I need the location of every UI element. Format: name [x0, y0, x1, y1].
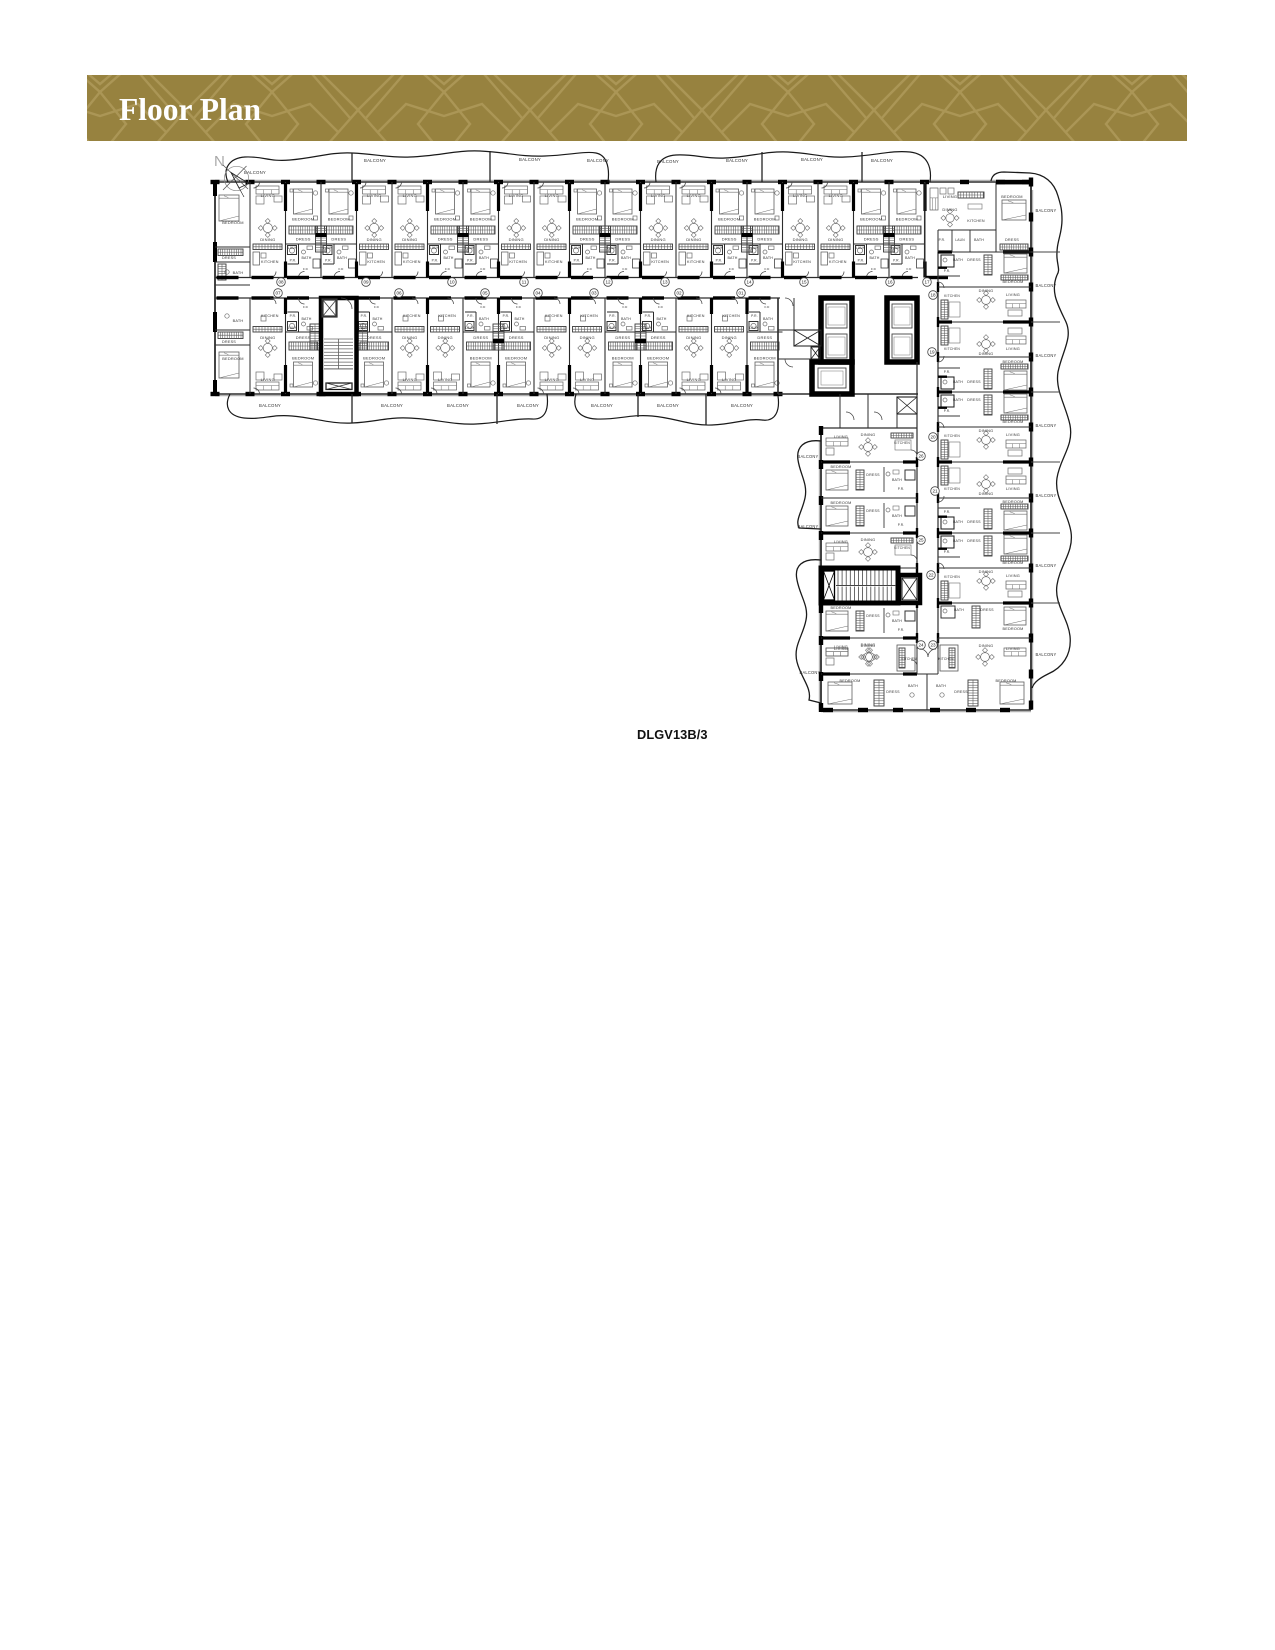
svg-text:LIVING: LIVING	[687, 377, 701, 382]
svg-text:BATH: BATH	[443, 256, 453, 260]
svg-text:F.D: F.D	[445, 267, 451, 271]
svg-text:BEDROOM: BEDROOM	[896, 217, 918, 222]
svg-text:BALCONY: BALCONY	[1036, 493, 1057, 498]
svg-text:F.D: F.D	[303, 267, 309, 271]
svg-text:DRESS: DRESS	[954, 690, 968, 694]
svg-text:20: 20	[930, 435, 936, 440]
svg-text:BEDROOM: BEDROOM	[839, 679, 860, 683]
svg-text:KITCHEN: KITCHEN	[722, 314, 740, 318]
svg-text:KITCHEN: KITCHEN	[944, 575, 960, 579]
svg-text:P.R.: P.R.	[898, 523, 905, 527]
svg-text:LAUN: LAUN	[430, 246, 440, 250]
svg-text:LIVING: LIVING	[1006, 432, 1020, 437]
svg-text:LAUN: LAUN	[891, 246, 901, 250]
svg-text:BATH: BATH	[514, 317, 524, 321]
svg-text:F.D: F.D	[480, 305, 486, 309]
svg-text:DRESS: DRESS	[864, 237, 879, 242]
svg-text:LIVING: LIVING	[509, 193, 523, 198]
svg-text:BATH: BATH	[301, 317, 311, 321]
svg-text:18: 18	[930, 293, 936, 298]
svg-text:P.R.: P.R.	[751, 314, 758, 318]
svg-text:BEDROOM: BEDROOM	[1002, 627, 1023, 631]
svg-text:KITCHEN: KITCHEN	[580, 314, 598, 318]
svg-text:LAUN: LAUN	[607, 246, 617, 250]
svg-text:DRESS: DRESS	[967, 520, 981, 524]
svg-text:P.R.: P.R.	[939, 238, 946, 242]
svg-text:DINING: DINING	[651, 237, 666, 242]
svg-text:DINING: DINING	[942, 207, 957, 212]
svg-text:F.D: F.D	[764, 267, 770, 271]
svg-text:BEDROOM: BEDROOM	[576, 217, 598, 222]
svg-text:P.R.: P.R.	[290, 314, 297, 318]
svg-text:P.R.: P.R.	[751, 259, 758, 263]
svg-text:BEDROOM: BEDROOM	[292, 217, 314, 222]
svg-text:BATH: BATH	[233, 271, 244, 275]
svg-text:BEDROOM: BEDROOM	[995, 679, 1016, 683]
svg-text:DINING: DINING	[438, 335, 453, 340]
svg-text:DRESS: DRESS	[967, 539, 981, 543]
svg-text:BALCONY: BALCONY	[591, 403, 613, 408]
svg-text:F.D: F.D	[622, 267, 628, 271]
svg-text:P.R.: P.R.	[645, 314, 652, 318]
svg-text:P.R.: P.R.	[944, 370, 951, 374]
svg-text:KITCHEN: KITCHEN	[944, 347, 960, 351]
svg-text:BEDROOM: BEDROOM	[718, 217, 740, 222]
svg-text:24: 24	[918, 643, 924, 648]
svg-text:BATH: BATH	[953, 520, 963, 524]
svg-text:DINING: DINING	[686, 237, 701, 242]
svg-text:KITCHEN: KITCHEN	[944, 294, 960, 298]
svg-text:P.R.: P.R.	[574, 259, 581, 263]
svg-text:LIVING: LIVING	[834, 434, 848, 439]
svg-text:DINING: DINING	[979, 569, 994, 574]
svg-text:KITCHEN: KITCHEN	[894, 546, 910, 550]
svg-text:02: 02	[676, 291, 682, 296]
svg-text:09: 09	[363, 280, 369, 285]
svg-text:BEDROOM: BEDROOM	[1002, 561, 1023, 565]
svg-text:BATH: BATH	[763, 317, 773, 321]
svg-text:12: 12	[605, 280, 611, 285]
svg-text:BALCONY: BALCONY	[1036, 283, 1057, 288]
svg-text:P.R.: P.R.	[944, 269, 951, 273]
svg-text:DINING: DINING	[402, 335, 417, 340]
svg-text:F.D: F.D	[480, 267, 486, 271]
svg-text:BALCONY: BALCONY	[871, 158, 893, 163]
svg-text:P.R.: P.R.	[609, 259, 616, 263]
svg-text:BATH: BATH	[337, 256, 347, 260]
svg-text:BEDROOM: BEDROOM	[222, 356, 244, 361]
svg-text:DINING: DINING	[402, 237, 417, 242]
svg-text:11: 11	[522, 280, 527, 285]
svg-text:P.R.: P.R.	[898, 487, 905, 491]
svg-text:BEDROOM: BEDROOM	[612, 356, 634, 361]
svg-text:BEDROOM: BEDROOM	[363, 356, 385, 361]
svg-text:BEDROOM: BEDROOM	[754, 356, 776, 361]
svg-text:BEDROOM: BEDROOM	[830, 606, 851, 610]
svg-text:BATH: BATH	[953, 258, 963, 262]
svg-text:BALCONY: BALCONY	[587, 158, 609, 163]
svg-text:LAUN: LAUN	[323, 246, 333, 250]
svg-text:08: 08	[278, 280, 284, 285]
svg-text:DRESS: DRESS	[509, 335, 524, 340]
svg-text:DRESS: DRESS	[980, 608, 994, 612]
svg-text:BALCONY: BALCONY	[517, 403, 539, 408]
svg-text:BATH: BATH	[954, 608, 964, 612]
svg-text:BATH: BATH	[656, 317, 666, 321]
svg-text:BALCONY: BALCONY	[1036, 353, 1057, 358]
svg-text:BATH: BATH	[953, 380, 963, 384]
svg-text:DINING: DINING	[580, 335, 595, 340]
svg-text:LIVING: LIVING	[1006, 486, 1020, 491]
svg-text:BATH: BATH	[233, 319, 244, 323]
svg-text:DRESS: DRESS	[757, 335, 772, 340]
svg-text:DRESS: DRESS	[615, 237, 630, 242]
svg-text:KITCHEN: KITCHEN	[651, 260, 669, 264]
svg-text:DRESS: DRESS	[296, 335, 311, 340]
svg-text:BALCONY: BALCONY	[381, 403, 403, 408]
svg-text:P.R.: P.R.	[361, 314, 368, 318]
svg-text:LIVING: LIVING	[834, 539, 848, 544]
svg-text:BATH: BATH	[372, 317, 382, 321]
svg-text:DRESS: DRESS	[722, 237, 737, 242]
svg-text:DINING: DINING	[509, 237, 524, 242]
svg-text:P.R.: P.R.	[716, 259, 723, 263]
svg-text:DINING: DINING	[979, 351, 994, 356]
svg-text:LAUN: LAUN	[465, 326, 475, 330]
svg-text:BALCONY: BALCONY	[657, 403, 679, 408]
svg-text:LAUN: LAUN	[955, 238, 965, 242]
svg-text:DINING: DINING	[722, 335, 737, 340]
svg-text:DRESS: DRESS	[866, 614, 880, 618]
svg-text:BATH: BATH	[908, 684, 918, 688]
svg-text:BATH: BATH	[479, 317, 489, 321]
svg-text:BEDROOM: BEDROOM	[612, 217, 634, 222]
svg-text:BEDROOM: BEDROOM	[222, 220, 244, 225]
svg-text:LAUN: LAUN	[749, 326, 759, 330]
svg-text:LAUN: LAUN	[607, 326, 617, 330]
svg-text:BALCONY: BALCONY	[447, 403, 469, 408]
svg-text:BALCONY: BALCONY	[364, 158, 386, 163]
svg-text:BATH: BATH	[869, 256, 879, 260]
svg-text:DRESS: DRESS	[967, 398, 981, 402]
svg-text:DINING: DINING	[260, 237, 275, 242]
svg-text:BATH: BATH	[301, 256, 311, 260]
svg-text:BALCONY: BALCONY	[800, 670, 821, 675]
svg-text:P.R.: P.R.	[432, 259, 439, 263]
svg-text:DINING: DINING	[979, 288, 994, 293]
svg-text:BATH: BATH	[936, 684, 946, 688]
svg-text:BATH: BATH	[953, 398, 963, 402]
svg-text:LIVING: LIVING	[829, 193, 843, 198]
svg-text:17: 17	[924, 280, 930, 285]
svg-text:LAUN: LAUN	[572, 246, 582, 250]
svg-text:LAUN: LAUN	[749, 246, 759, 250]
svg-text:BATH: BATH	[621, 256, 631, 260]
svg-text:DINING: DINING	[861, 537, 876, 542]
svg-text:LIVING: LIVING	[943, 194, 957, 199]
svg-text:KITCHEN: KITCHEN	[438, 314, 456, 318]
svg-text:BALCONY: BALCONY	[1036, 563, 1057, 568]
svg-text:DINING: DINING	[979, 491, 994, 496]
svg-text:KITCHEN: KITCHEN	[829, 260, 847, 264]
svg-text:LIVING: LIVING	[793, 193, 807, 198]
svg-text:LIVING: LIVING	[403, 377, 417, 382]
svg-text:DRESS: DRESS	[615, 335, 630, 340]
svg-text:F.D: F.D	[871, 267, 877, 271]
svg-text:KITCHEN: KITCHEN	[944, 487, 960, 491]
svg-text:BEDROOM: BEDROOM	[1002, 500, 1023, 504]
svg-text:LIVING: LIVING	[261, 377, 275, 382]
svg-text:P.R.: P.R.	[503, 314, 510, 318]
svg-text:LIVING: LIVING	[545, 193, 559, 198]
svg-text:BALCONY: BALCONY	[731, 403, 753, 408]
svg-text:07: 07	[275, 291, 281, 296]
svg-text:BEDROOM: BEDROOM	[505, 356, 527, 361]
svg-text:KITCHEN: KITCHEN	[403, 260, 421, 264]
svg-text:P.R.: P.R.	[944, 550, 951, 554]
svg-text:BATH: BATH	[905, 256, 915, 260]
svg-text:DINING: DINING	[367, 237, 382, 242]
svg-text:F.D: F.D	[764, 305, 770, 309]
svg-text:BEDROOM: BEDROOM	[1002, 420, 1023, 424]
svg-text:KITCHEN: KITCHEN	[261, 260, 279, 264]
svg-text:LIVING: LIVING	[722, 377, 736, 382]
svg-text:BALCONY: BALCONY	[1036, 652, 1057, 657]
svg-text:DRESS: DRESS	[967, 258, 981, 262]
svg-text:BEDROOM: BEDROOM	[860, 217, 882, 222]
svg-text:KITCHEN: KITCHEN	[261, 314, 279, 318]
svg-text:DRESS: DRESS	[331, 237, 346, 242]
svg-text:DRESS: DRESS	[866, 473, 880, 477]
svg-text:KITCHEN: KITCHEN	[687, 314, 705, 318]
svg-text:P.R.: P.R.	[858, 259, 865, 263]
svg-text:16: 16	[887, 280, 893, 285]
svg-text:DRESS: DRESS	[296, 237, 311, 242]
svg-text:DRESS: DRESS	[866, 509, 880, 513]
svg-text:LIVING: LIVING	[1006, 346, 1020, 351]
svg-text:LIVING: LIVING	[367, 193, 381, 198]
svg-text:KITCHEN: KITCHEN	[403, 314, 421, 318]
svg-text:DRESS: DRESS	[1005, 238, 1019, 242]
svg-text:BEDROOM: BEDROOM	[1001, 194, 1023, 199]
svg-text:BATH: BATH	[727, 256, 737, 260]
svg-text:DINING: DINING	[979, 428, 994, 433]
svg-text:DRESS: DRESS	[580, 237, 595, 242]
svg-text:BEDROOM: BEDROOM	[470, 217, 492, 222]
svg-text:LIVING: LIVING	[834, 646, 848, 651]
svg-text:BALCONY: BALCONY	[798, 454, 819, 459]
svg-text:F.D: F.D	[729, 267, 735, 271]
svg-text:DRESS: DRESS	[757, 237, 772, 242]
svg-text:BALCONY: BALCONY	[1036, 423, 1057, 428]
svg-text:P.R.: P.R.	[467, 314, 474, 318]
svg-text:LIVING: LIVING	[1006, 292, 1020, 297]
svg-text:F.D: F.D	[516, 305, 522, 309]
svg-text:DRESS: DRESS	[222, 256, 236, 260]
svg-text:DINING: DINING	[544, 237, 559, 242]
svg-text:BEDROOM: BEDROOM	[830, 501, 851, 505]
svg-text:06: 06	[396, 291, 402, 296]
svg-text:DLGV13B/3: DLGV13B/3	[637, 727, 708, 742]
svg-text:KITCHEN: KITCHEN	[545, 314, 563, 318]
svg-text:BATH: BATH	[621, 317, 631, 321]
svg-text:BALCONY: BALCONY	[657, 159, 679, 164]
svg-text:P.R.: P.R.	[609, 314, 616, 318]
svg-text:DINING: DINING	[686, 335, 701, 340]
svg-text:KITCHEN: KITCHEN	[894, 441, 910, 445]
svg-text:BEDROOM: BEDROOM	[1002, 280, 1023, 284]
svg-text:KITCHEN: KITCHEN	[901, 657, 917, 661]
svg-text:LIVING: LIVING	[438, 377, 452, 382]
svg-text:BATH: BATH	[585, 256, 595, 260]
svg-text:LAUN: LAUN	[288, 326, 298, 330]
svg-text:BEDROOM: BEDROOM	[830, 465, 851, 469]
svg-text:P.R.: P.R.	[325, 259, 332, 263]
svg-text:Floor Plan: Floor Plan	[119, 92, 262, 127]
svg-text:F.D: F.D	[658, 305, 664, 309]
svg-text:BATH: BATH	[892, 619, 902, 623]
svg-text:BATH: BATH	[974, 238, 984, 242]
svg-text:LIVING: LIVING	[687, 193, 701, 198]
svg-text:P.R.: P.R.	[944, 510, 951, 514]
svg-text:LAUN: LAUN	[288, 246, 298, 250]
svg-text:F.D: F.D	[303, 305, 309, 309]
svg-text:P.R.: P.R.	[944, 409, 951, 413]
svg-text:13: 13	[662, 280, 668, 285]
svg-text:LAUN: LAUN	[465, 246, 475, 250]
svg-text:19: 19	[929, 350, 935, 355]
svg-text:BEDROOM: BEDROOM	[434, 217, 456, 222]
svg-text:N: N	[214, 153, 225, 170]
svg-text:LIVING: LIVING	[651, 193, 665, 198]
svg-text:04: 04	[535, 291, 541, 296]
svg-text:DRESS: DRESS	[473, 335, 488, 340]
svg-text:DRESS: DRESS	[886, 690, 900, 694]
svg-text:F.D: F.D	[374, 305, 380, 309]
svg-text:BEDROOM: BEDROOM	[754, 217, 776, 222]
svg-text:KITCHEN: KITCHEN	[793, 260, 811, 264]
svg-text:DRESS: DRESS	[899, 237, 914, 242]
svg-text:BEDROOM: BEDROOM	[1002, 360, 1023, 364]
svg-text:25: 25	[918, 538, 924, 543]
svg-text:BATH: BATH	[892, 478, 902, 482]
svg-text:BALCONY: BALCONY	[726, 158, 748, 163]
svg-text:DINING: DINING	[861, 643, 876, 648]
svg-text:DRESS: DRESS	[473, 237, 488, 242]
svg-text:BALCONY: BALCONY	[1036, 208, 1057, 213]
svg-text:DRESS: DRESS	[438, 237, 453, 242]
svg-text:LIVING: LIVING	[580, 377, 594, 382]
svg-text:P.R.: P.R.	[893, 259, 900, 263]
svg-text:LIVING: LIVING	[403, 193, 417, 198]
svg-text:14: 14	[746, 280, 752, 285]
svg-text:LIVING: LIVING	[1006, 646, 1020, 651]
svg-text:BATH: BATH	[479, 256, 489, 260]
svg-text:KITCHEN: KITCHEN	[687, 260, 705, 264]
svg-text:03: 03	[591, 291, 597, 296]
svg-text:F.D: F.D	[587, 267, 593, 271]
svg-text:KITCHEN: KITCHEN	[509, 260, 527, 264]
svg-text:BEDROOM: BEDROOM	[328, 217, 350, 222]
svg-text:DRESS: DRESS	[222, 340, 236, 344]
svg-text:15: 15	[801, 280, 807, 285]
svg-text:KITCHEN: KITCHEN	[944, 434, 960, 438]
svg-text:F.D: F.D	[622, 305, 628, 309]
svg-text:22: 22	[928, 573, 934, 578]
svg-text:KITCHEN: KITCHEN	[545, 260, 563, 264]
svg-text:05: 05	[482, 291, 488, 296]
svg-text:F.D: F.D	[906, 267, 912, 271]
svg-text:F.D: F.D	[338, 267, 344, 271]
svg-text:23: 23	[930, 643, 936, 648]
svg-text:DINING: DINING	[979, 643, 994, 648]
svg-text:LAUN: LAUN	[714, 246, 724, 250]
svg-text:BALCONY: BALCONY	[259, 403, 281, 408]
svg-text:BALCONY: BALCONY	[801, 157, 823, 162]
svg-text:BALCONY: BALCONY	[798, 524, 819, 529]
svg-text:DINING: DINING	[544, 335, 559, 340]
svg-text:LIVING: LIVING	[545, 377, 559, 382]
svg-text:DINING: DINING	[861, 432, 876, 437]
svg-text:LAUN: LAUN	[856, 246, 866, 250]
svg-text:21: 21	[932, 489, 938, 494]
svg-text:DRESS: DRESS	[967, 380, 981, 384]
svg-text:DRESS: DRESS	[367, 335, 382, 340]
svg-text:P.R.: P.R.	[290, 259, 297, 263]
svg-text:BEDROOM: BEDROOM	[470, 356, 492, 361]
svg-text:BATH: BATH	[892, 514, 902, 518]
svg-text:KITCHEN: KITCHEN	[938, 657, 954, 661]
svg-text:KITCHEN: KITCHEN	[367, 260, 385, 264]
svg-text:DRESS: DRESS	[651, 335, 666, 340]
svg-text:DINING: DINING	[828, 237, 843, 242]
svg-text:BEDROOM: BEDROOM	[647, 356, 669, 361]
svg-text:26: 26	[918, 454, 924, 459]
svg-text:10: 10	[449, 280, 455, 285]
svg-text:BALCONY: BALCONY	[519, 157, 541, 162]
svg-text:01: 01	[738, 291, 744, 296]
svg-text:KITCHEN: KITCHEN	[967, 219, 985, 223]
svg-text:LIVING: LIVING	[261, 193, 275, 198]
svg-text:P.R.: P.R.	[898, 628, 905, 632]
svg-text:DINING: DINING	[260, 335, 275, 340]
svg-text:P.R.: P.R.	[467, 259, 474, 263]
svg-text:DINING: DINING	[793, 237, 808, 242]
svg-text:LIVING: LIVING	[1006, 573, 1020, 578]
svg-text:BEDROOM: BEDROOM	[292, 356, 314, 361]
svg-text:BATH: BATH	[763, 256, 773, 260]
svg-text:BATH: BATH	[953, 539, 963, 543]
